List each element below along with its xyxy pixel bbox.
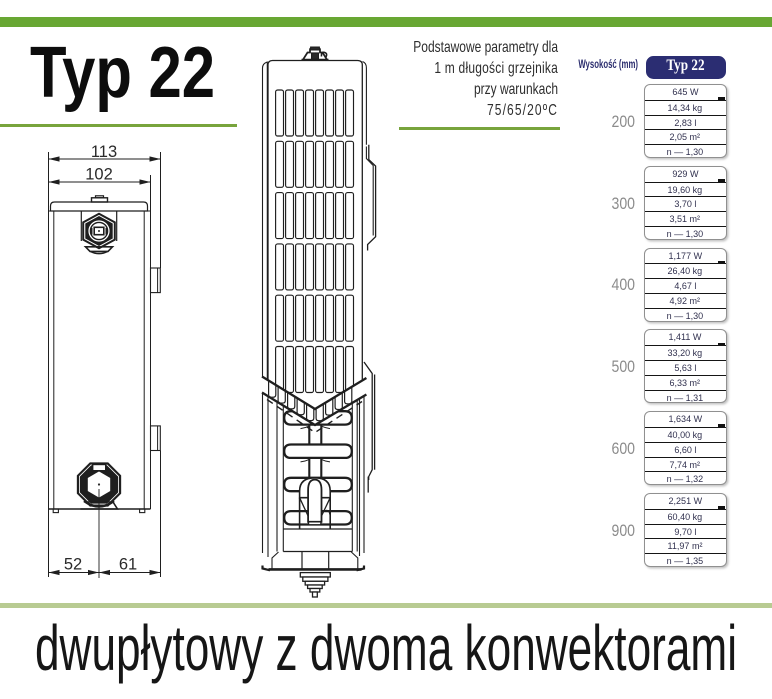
svg-text:113: 113	[91, 143, 117, 161]
svg-text:Typ 22: Typ 22	[30, 32, 215, 113]
svg-text:52: 52	[64, 556, 82, 574]
svg-text:61: 61	[119, 556, 137, 574]
svg-text:dwupłytowy z dwoma konwektoram: dwupłytowy z dwoma konwektorami	[35, 612, 737, 684]
svg-text:102: 102	[85, 166, 113, 184]
